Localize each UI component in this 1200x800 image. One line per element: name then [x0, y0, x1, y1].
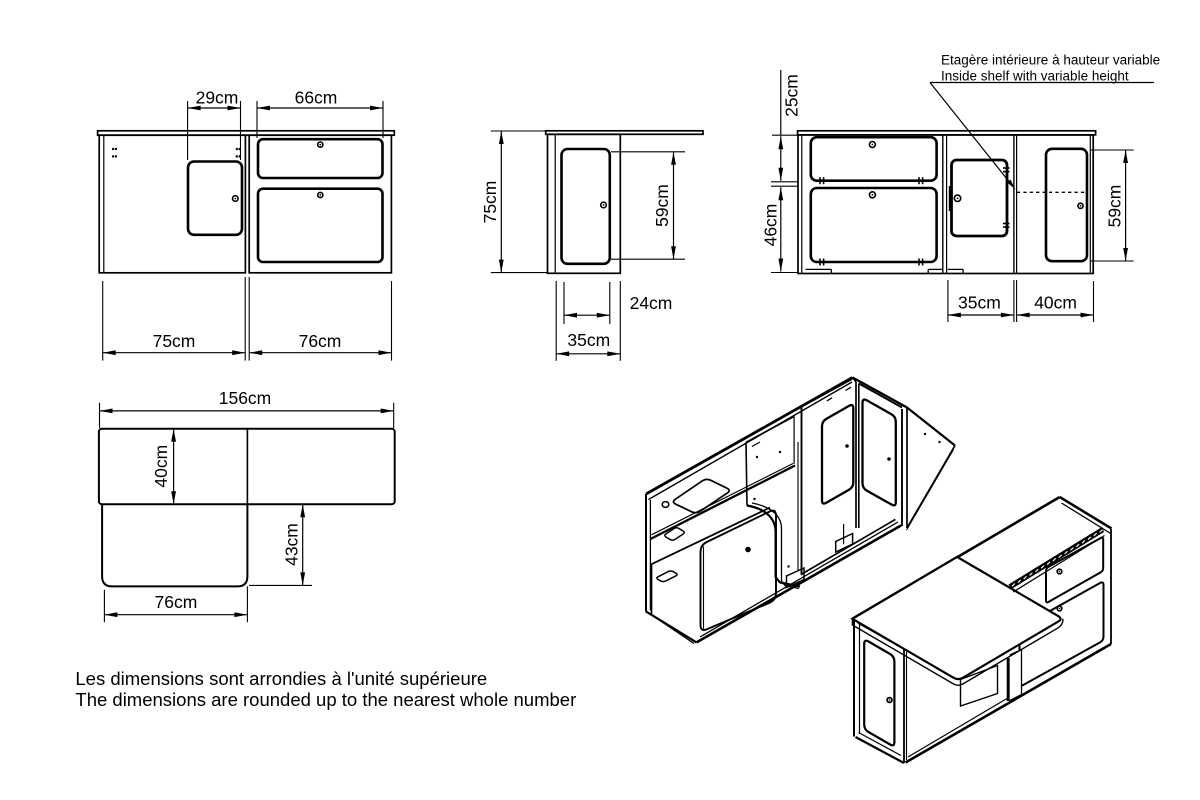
svg-text:156cm: 156cm — [219, 388, 272, 408]
svg-text:29cm: 29cm — [196, 88, 239, 108]
svg-text:46cm: 46cm — [761, 204, 781, 247]
svg-text:66cm: 66cm — [295, 88, 338, 108]
svg-text:35cm: 35cm — [958, 293, 1001, 313]
svg-text:Les dimensions sont arrondies: Les dimensions sont arrondies à l'unité … — [75, 668, 487, 689]
svg-text:40cm: 40cm — [1034, 293, 1077, 313]
svg-text:76cm: 76cm — [155, 592, 198, 612]
svg-text:75cm: 75cm — [153, 331, 196, 351]
svg-text:43cm: 43cm — [282, 523, 302, 566]
svg-text:75cm: 75cm — [480, 181, 500, 224]
svg-text:40cm: 40cm — [151, 445, 171, 488]
svg-text:Inside shelf with variable hei: Inside shelf with variable height — [941, 69, 1129, 84]
svg-text:24cm: 24cm — [630, 293, 673, 313]
svg-text:Etagère intérieure à hauteur v: Etagère intérieure à hauteur variable — [941, 53, 1160, 68]
svg-text:35cm: 35cm — [567, 330, 610, 350]
svg-text:59cm: 59cm — [652, 184, 672, 227]
svg-text:The dimensions are rounded up: The dimensions are rounded up to the nea… — [75, 689, 576, 710]
svg-text:59cm: 59cm — [1105, 185, 1125, 228]
svg-text:25cm: 25cm — [782, 74, 802, 117]
svg-text:76cm: 76cm — [299, 331, 342, 351]
